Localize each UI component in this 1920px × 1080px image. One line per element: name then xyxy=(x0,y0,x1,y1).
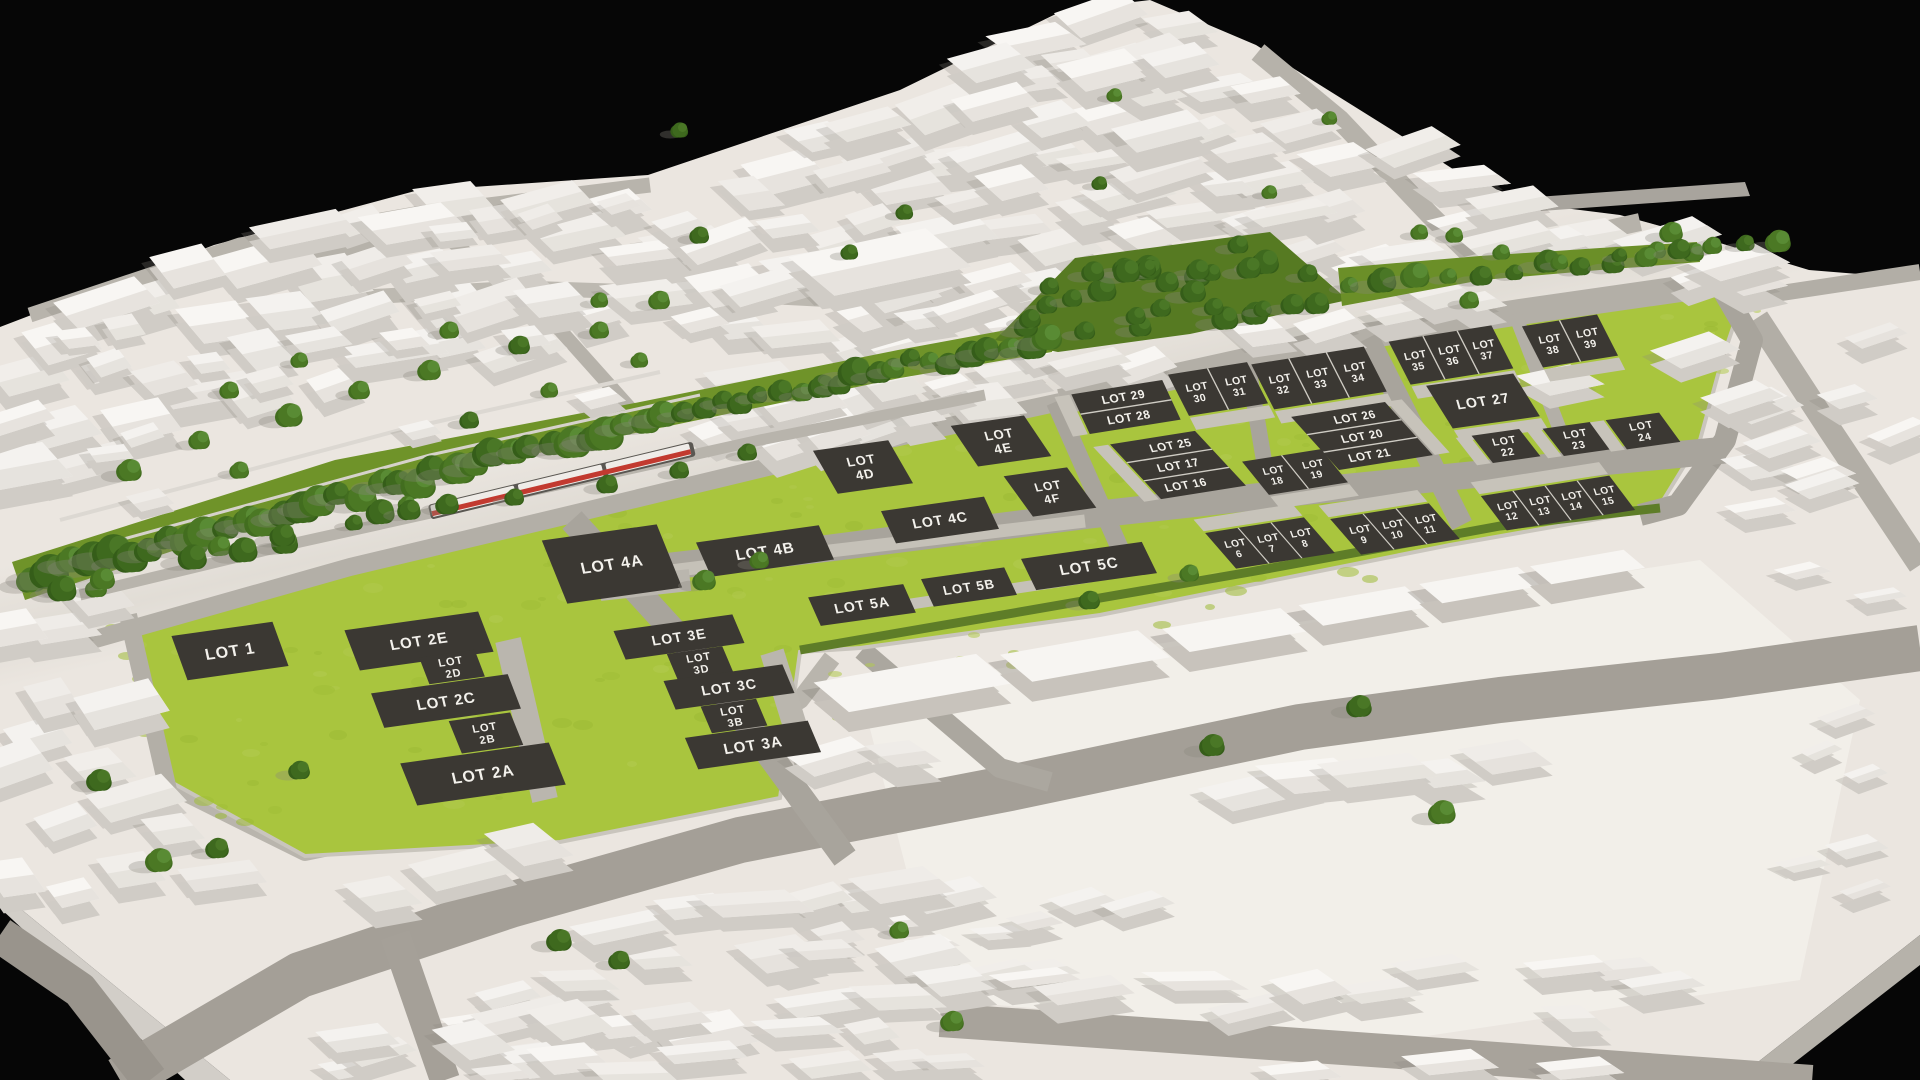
svg-text:2D: 2D xyxy=(444,667,463,681)
svg-text:3B: 3B xyxy=(726,716,745,730)
svg-text:2B: 2B xyxy=(478,733,497,747)
